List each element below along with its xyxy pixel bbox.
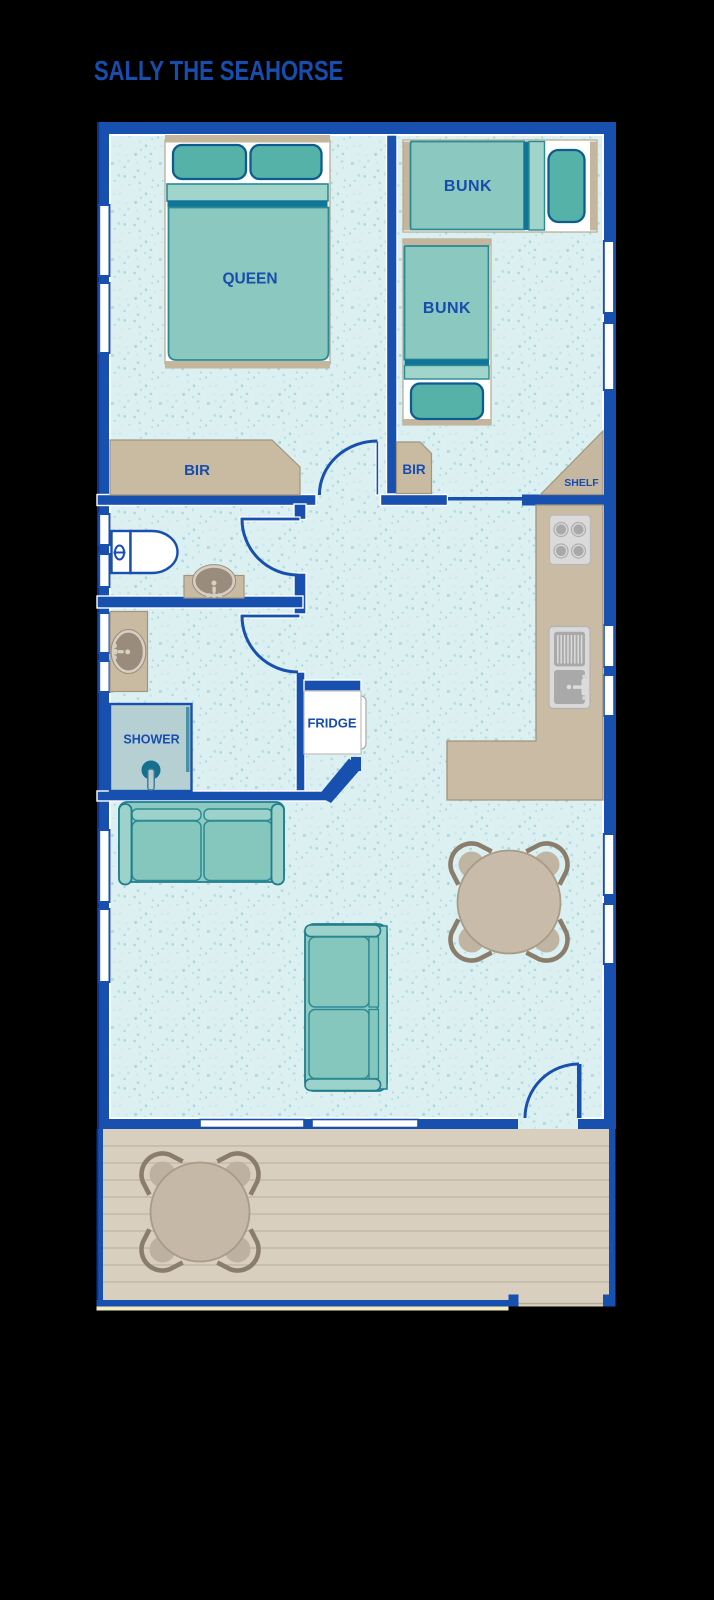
svg-text:BUNK: BUNK [444,178,492,195]
svg-text:BUNK: BUNK [423,300,471,317]
svg-text:SHOWER: SHOWER [123,733,179,747]
svg-text:BIR: BIR [402,462,426,477]
svg-text:SHELF: SHELF [564,477,599,489]
svg-text:SALLY THE SEAHORSE: SALLY THE SEAHORSE [94,56,343,87]
svg-text:QUEEN: QUEEN [222,271,277,288]
svg-text:BIR: BIR [184,462,210,479]
svg-text:FRIDGE: FRIDGE [307,716,356,731]
